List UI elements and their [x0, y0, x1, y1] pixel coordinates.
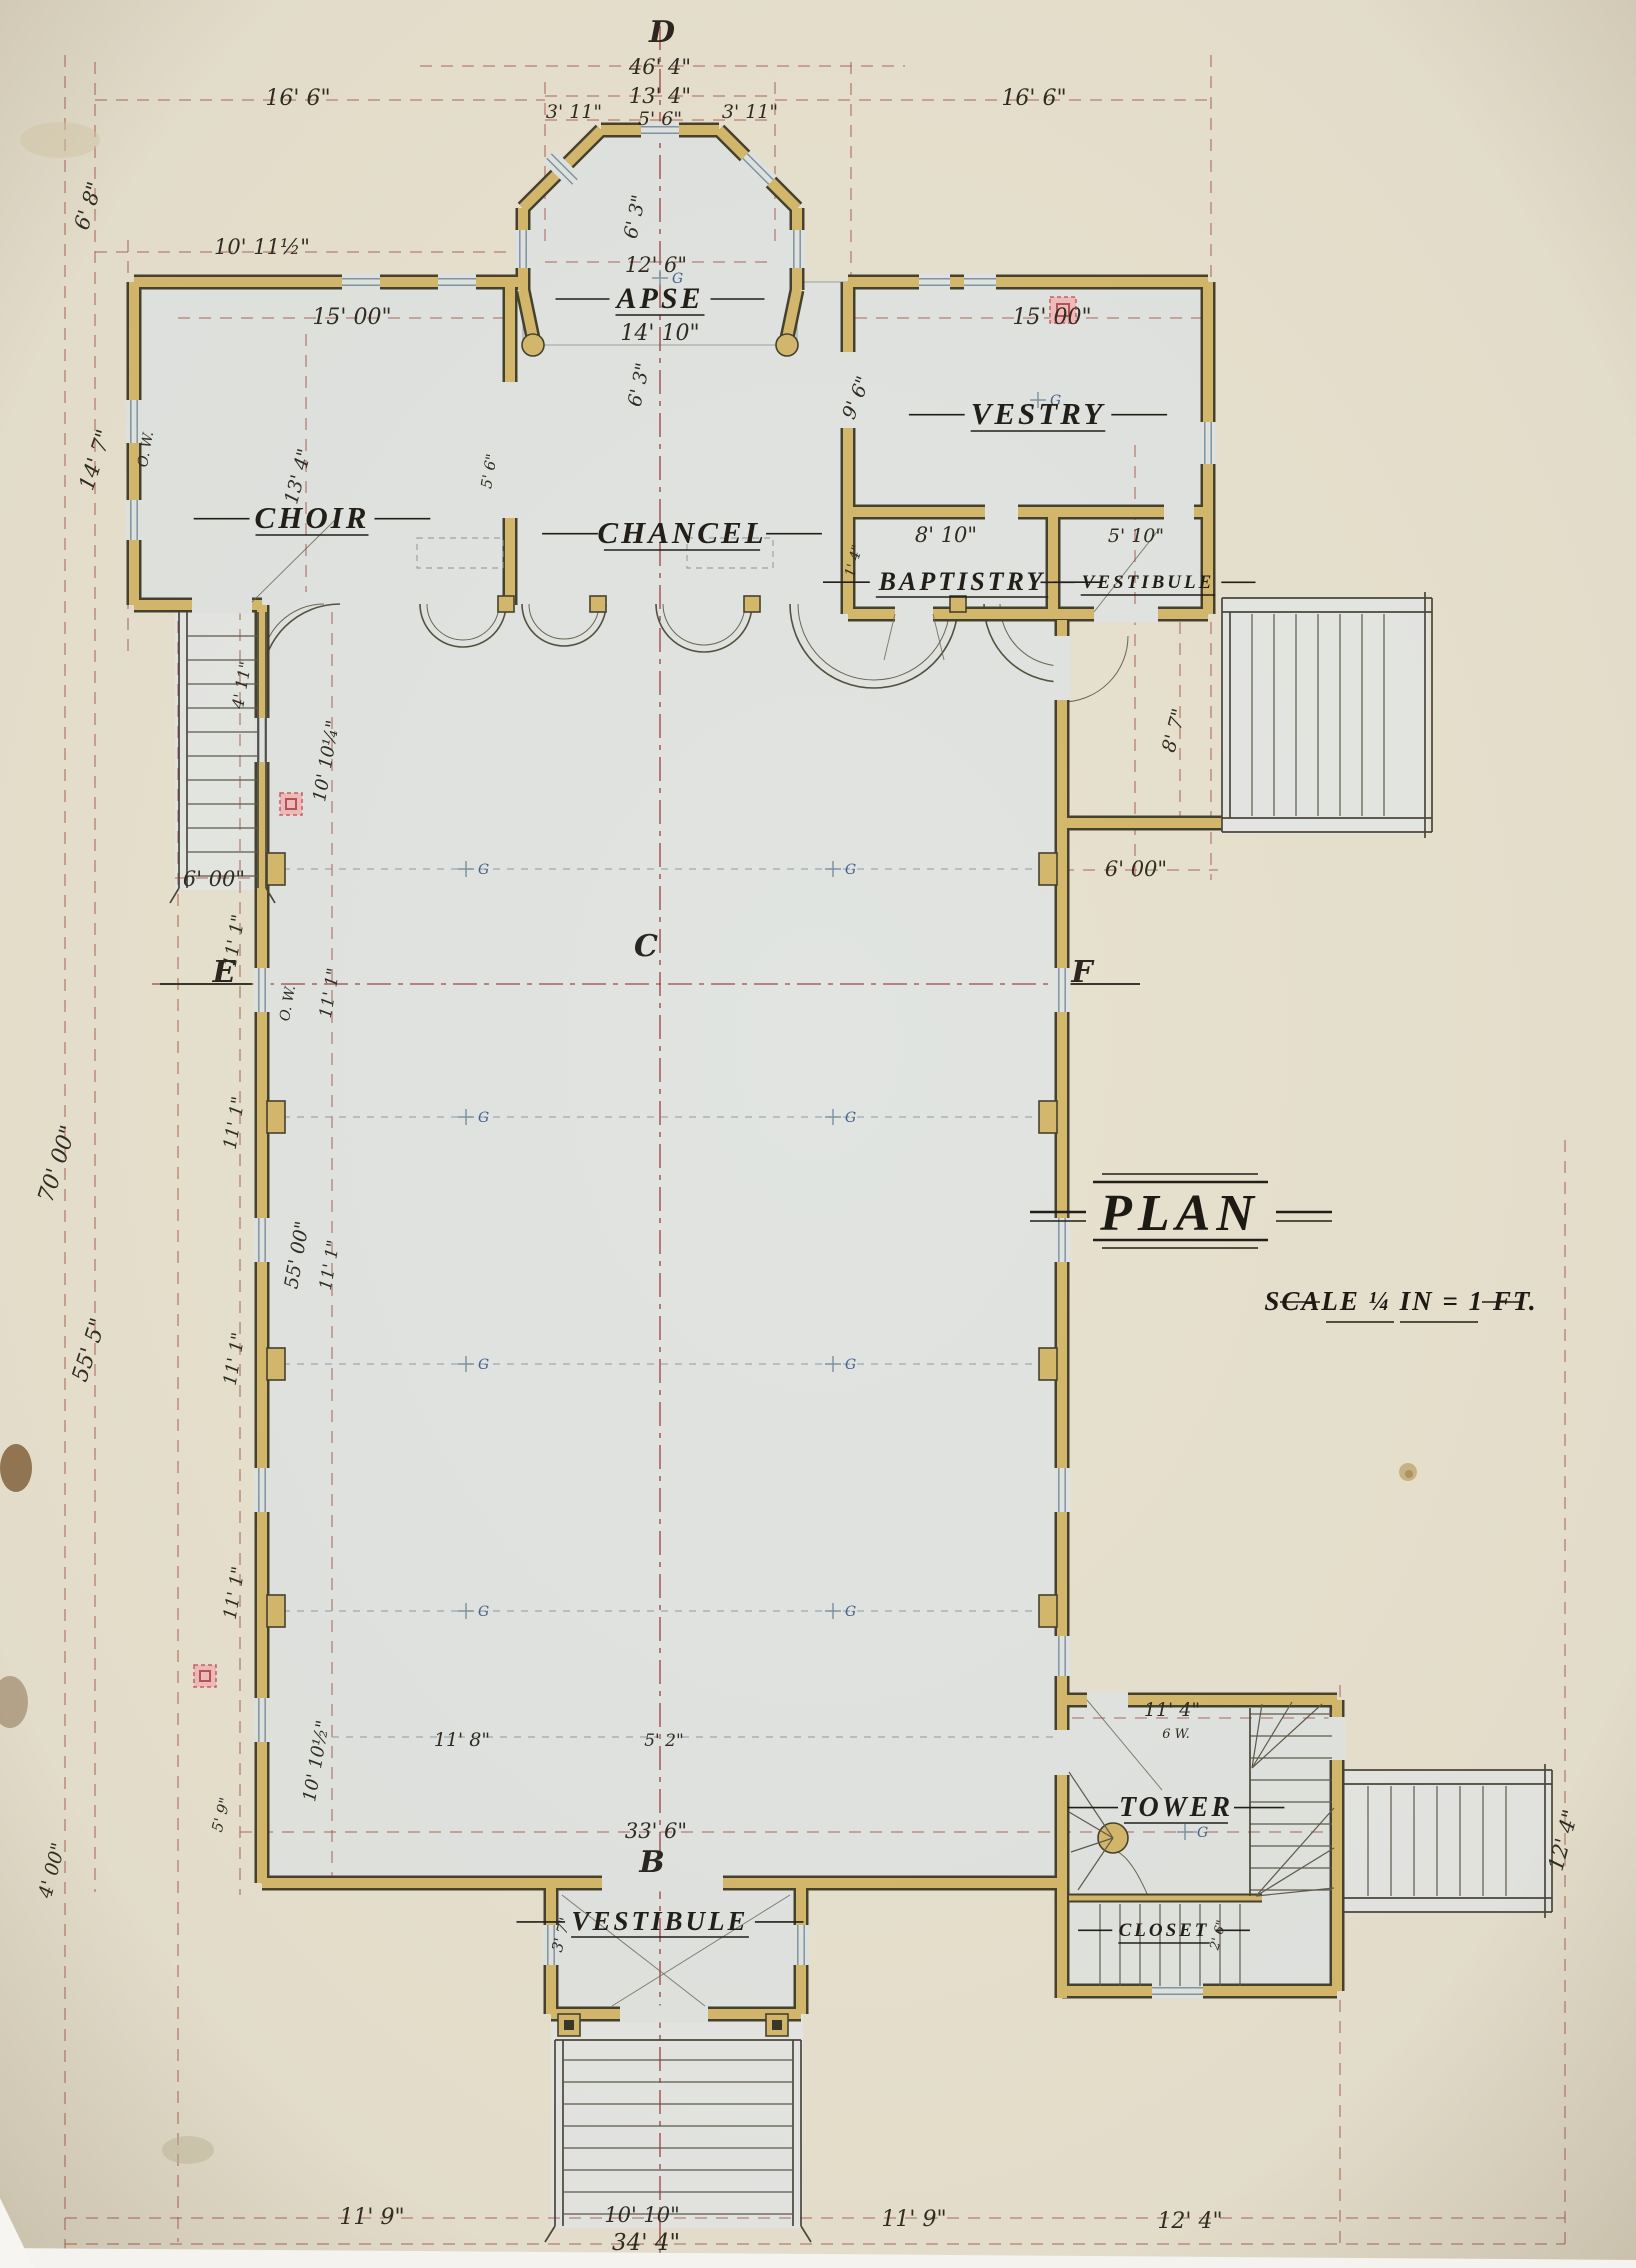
architectural-drawing: GGGGGGGGGGG PLAN SCALE ¼ IN = 1 FT. 46' … [0, 0, 1636, 2268]
scanned-floor-plan-sheet: GGGGGGGGGGG PLAN SCALE ¼ IN = 1 FT. 46' … [0, 0, 1636, 2268]
paper-vignette [0, 0, 1636, 2268]
